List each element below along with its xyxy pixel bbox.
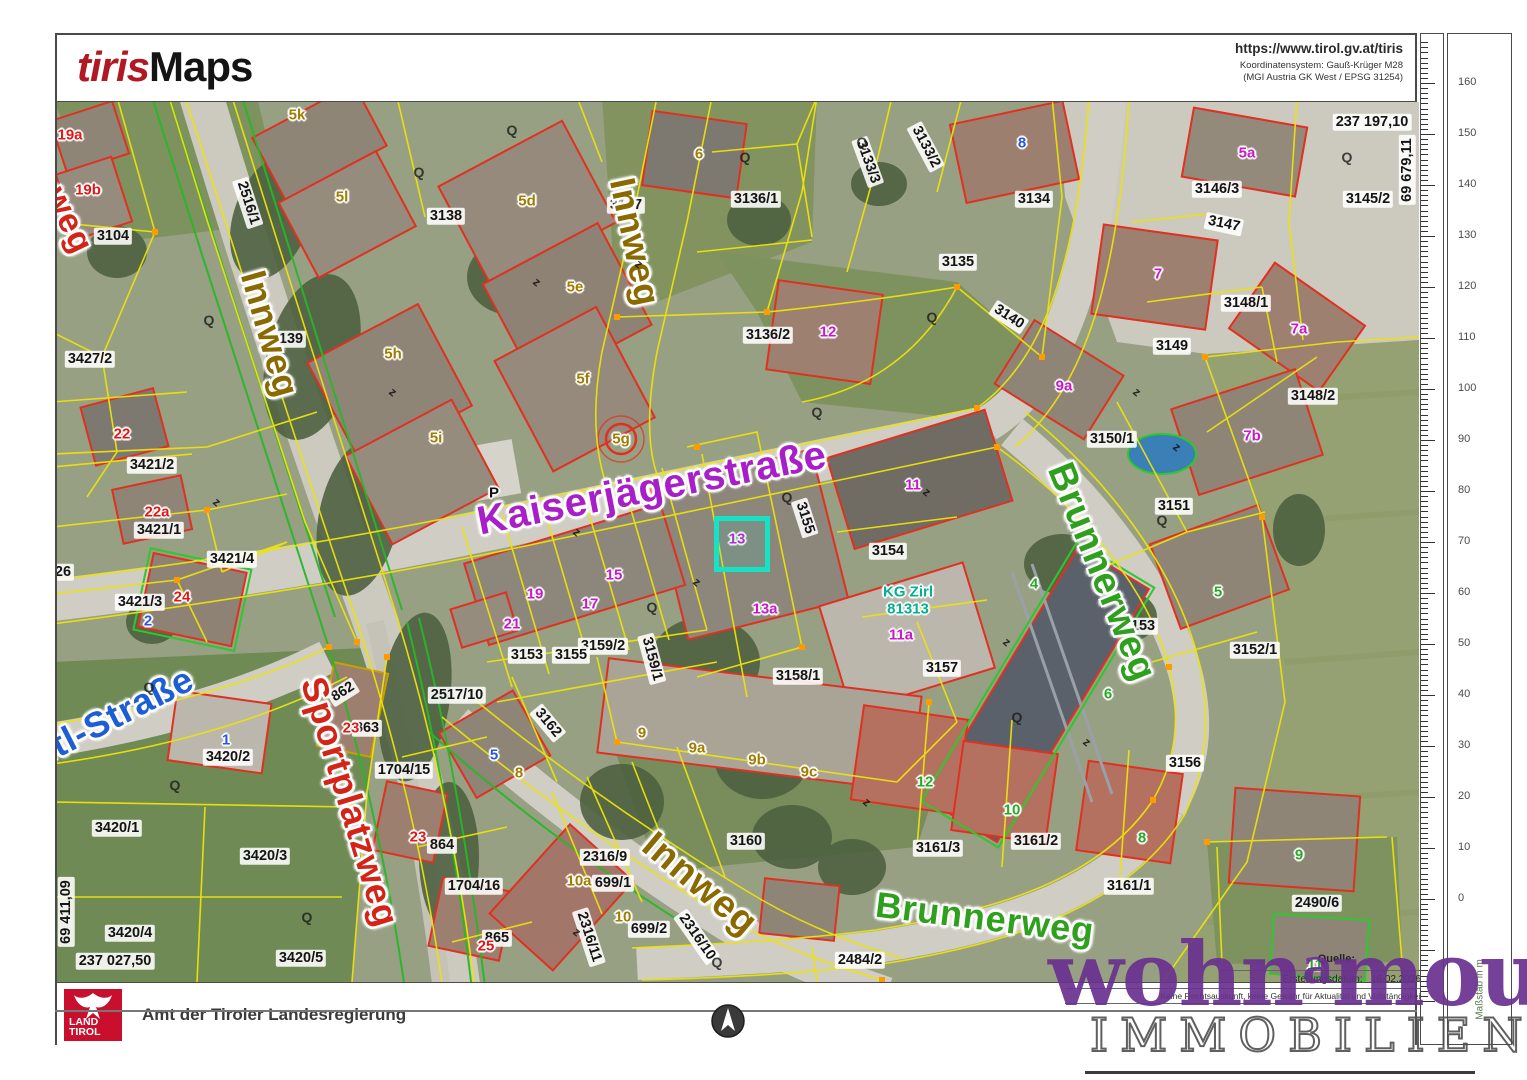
ruler-tick: [1421, 833, 1428, 834]
ruler-tick: [1421, 200, 1428, 201]
cadastre-symbol: Q: [740, 150, 751, 164]
ruler-tick: [1421, 710, 1428, 711]
building-number-label: 5i: [430, 431, 443, 446]
ruler-tick: [1421, 772, 1428, 773]
ruler-tick: [1421, 593, 1435, 594]
ruler-tick: [1421, 251, 1428, 252]
building-number-label: 19a: [57, 128, 82, 143]
ruler-tick: [1421, 93, 1428, 94]
land-tirol-text: LAND TIROL: [69, 1017, 101, 1037]
ruler-tick: [1421, 241, 1428, 242]
building-number-label: 7b: [1243, 429, 1261, 444]
ruler-tick: [1421, 782, 1428, 783]
parcel-label: 3148/1: [1221, 295, 1271, 312]
parcel-label: 699/2: [628, 921, 670, 938]
ruler-tick: [1421, 639, 1428, 640]
parcel-label: 3427/2: [65, 351, 115, 368]
building-number-label: 11a: [889, 628, 913, 643]
ruler-tick-label: 160: [1458, 76, 1476, 88]
ruler-tick: [1421, 333, 1428, 334]
ruler-tick: [1421, 129, 1428, 130]
ruler-tick: [1421, 751, 1428, 752]
ruler-tick: [1421, 481, 1428, 482]
building-number-label: 81313: [887, 602, 929, 617]
grid-coordinate-label: 69 411,09: [58, 877, 75, 947]
cadastre-symbol: Q: [1157, 513, 1168, 527]
scale-ruler-ticks: [1420, 33, 1444, 1045]
tiris-maps-logo: tirisMaps: [77, 43, 252, 91]
ruler-tick: [1421, 807, 1428, 808]
tiris-maps-print: tirisMaps https://www.tirol.gv.at/tiris …: [0, 0, 1527, 1080]
scale-ruler-numbers: Maßstab in m 160150140130120110100908070…: [1447, 33, 1512, 1045]
parcel-label: 3148/2: [1288, 388, 1338, 405]
ruler-tick: [1421, 731, 1428, 732]
building-number-label: 8: [1138, 831, 1146, 846]
ruler-tick: [1421, 904, 1428, 905]
cadastre-symbol: Q: [507, 123, 518, 137]
ruler-tick-label: 60: [1458, 586, 1470, 598]
ruler-tick: [1421, 868, 1428, 869]
building-number-label: 11: [905, 478, 921, 493]
ruler-tick: [1421, 103, 1428, 104]
north-compass-icon: [710, 1003, 746, 1039]
parcel-label: 3145/2: [1343, 191, 1393, 208]
ruler-tick: [1421, 838, 1428, 839]
ruler-tick: [1421, 613, 1428, 614]
ruler-tick: [1421, 573, 1428, 574]
ruler-tick: [1421, 313, 1428, 314]
ruler-tick: [1421, 185, 1435, 186]
ruler-tick: [1421, 52, 1428, 53]
building-number-label: 23: [410, 830, 427, 845]
ruler-tick: [1421, 894, 1428, 895]
ruler-tick: [1421, 542, 1435, 543]
tiris-url: https://www.tirol.gv.at/tiris: [1235, 41, 1403, 56]
ruler-tick-label: 140: [1458, 178, 1476, 190]
ruler-tick: [1421, 522, 1428, 523]
ruler-tick: [1421, 486, 1428, 487]
parcel-label: 3149: [1153, 338, 1191, 355]
ruler-tick: [1421, 654, 1428, 655]
ruler-tick: [1421, 221, 1428, 222]
building-number-label: 13a: [752, 602, 777, 617]
ruler-tick: [1421, 297, 1428, 298]
cadastre-symbol: Q: [1342, 150, 1353, 164]
building-number-label: 19b: [75, 183, 101, 198]
ruler-tick: [1421, 328, 1428, 329]
ruler-tick: [1421, 670, 1428, 671]
building-number-label: 15: [606, 568, 623, 583]
ruler-tick-label: 100: [1458, 382, 1476, 394]
ruler-tick: [1421, 460, 1428, 461]
ruler-tick: [1421, 119, 1428, 120]
cadastre-symbol: Q: [782, 490, 793, 504]
ruler-tick: [1421, 624, 1428, 625]
parcel-label: 3420/5: [276, 950, 326, 967]
selected-building-highlight[interactable]: [714, 516, 770, 572]
ruler-tick: [1421, 73, 1428, 74]
ruler-tick: [1421, 445, 1428, 446]
ruler-tick: [1421, 323, 1428, 324]
ruler-tick: [1421, 741, 1428, 742]
agency-title: Amt der Tiroler Landesregierung: [142, 1005, 406, 1025]
ruler-tick: [1421, 78, 1428, 79]
ruler-tick: [1421, 476, 1428, 477]
ruler-tick: [1421, 705, 1428, 706]
ruler-tick: [1421, 109, 1428, 110]
ruler-tick: [1421, 562, 1428, 563]
ruler-tick: [1421, 527, 1428, 528]
ruler-tick: [1421, 700, 1428, 701]
ruler-tick: [1421, 675, 1428, 676]
ruler-tick-label: 80: [1458, 484, 1470, 496]
ruler-tick: [1421, 211, 1428, 212]
ruler-tick: [1421, 797, 1435, 798]
ruler-tick: [1421, 318, 1428, 319]
ruler-tick: [1421, 256, 1428, 257]
building-number-label: 5k: [289, 108, 306, 123]
ruler-tick: [1421, 537, 1428, 538]
watermark-underline: [1085, 1071, 1475, 1074]
ruler-tick: [1421, 262, 1428, 263]
ruler-tick: [1421, 501, 1428, 502]
ruler-tick-label: 50: [1458, 637, 1470, 649]
ruler-tick: [1421, 511, 1428, 512]
ruler-tick: [1421, 440, 1435, 441]
ruler-tick: [1421, 695, 1435, 696]
parcel-label: 26: [57, 564, 74, 581]
cadastre-symbol: Q: [204, 313, 215, 327]
ruler-tick: [1421, 435, 1428, 436]
ruler-tick: [1421, 715, 1428, 716]
ruler-tick: [1421, 160, 1428, 161]
ruler-tick-label: 150: [1458, 127, 1476, 139]
ruler-tick: [1421, 721, 1428, 722]
building-number-label: 9a: [689, 741, 706, 756]
building-number-label: 7a: [1291, 322, 1308, 337]
ruler-tick: [1421, 756, 1428, 757]
building-number-label: 21: [504, 617, 521, 632]
ruler-tick: [1421, 603, 1428, 604]
parcel-label: 1704/15: [375, 762, 433, 779]
header: tirisMaps https://www.tirol.gv.at/tiris …: [57, 35, 1415, 102]
ruler-tick: [1421, 802, 1428, 803]
ruler-tick: [1421, 466, 1428, 467]
ruler-tick: [1421, 919, 1428, 920]
ruler-tick: [1421, 848, 1435, 849]
ruler-tick: [1421, 236, 1435, 237]
logo-maps: Maps: [149, 43, 252, 90]
ruler-tick-label: 30: [1458, 739, 1470, 751]
cadastre-symbol: Q: [712, 955, 723, 969]
ruler-tick: [1421, 909, 1428, 910]
building-number-label: 22: [114, 427, 131, 442]
ruler-tick: [1421, 889, 1428, 890]
building-number-label: 5a: [1239, 146, 1256, 161]
ruler-tick: [1421, 450, 1428, 451]
ruler-tick-label: 110: [1458, 331, 1476, 343]
map-frame: tirisMaps https://www.tirol.gv.at/tiris …: [55, 33, 1417, 1045]
ruler-tick-label: 90: [1458, 433, 1470, 445]
ruler-tick: [1421, 420, 1428, 421]
parcel-label: 3157: [923, 660, 961, 677]
cadastre-symbol: Q: [414, 165, 425, 179]
ruler-tick: [1421, 506, 1428, 507]
cadastre-symbol: Q: [1012, 710, 1023, 724]
building-number-label: 12: [917, 775, 934, 790]
ruler-tick: [1421, 644, 1435, 645]
ruler-tick: [1421, 629, 1428, 630]
building-number-label: 17: [582, 597, 599, 612]
header-meta: https://www.tirol.gv.at/tiris Koordinate…: [1235, 41, 1403, 84]
ruler-tick: [1421, 98, 1428, 99]
ruler-tick: [1421, 42, 1428, 43]
ruler-tick-label: 10: [1458, 841, 1470, 853]
building-number-label: 5: [490, 748, 498, 763]
ruler-tick: [1421, 787, 1428, 788]
ruler-tick: [1421, 471, 1428, 472]
ruler-tick: [1421, 277, 1428, 278]
building-number-label: 9: [1295, 848, 1303, 863]
building-number-label: 10a: [566, 874, 591, 889]
ruler-tick: [1421, 812, 1428, 813]
ruler-tick: [1421, 415, 1428, 416]
parcel-label: 3161/2: [1011, 833, 1061, 850]
parcel-label: 3161/1: [1104, 878, 1154, 895]
ruler-tick-label: 0: [1458, 892, 1464, 904]
ruler-tick: [1421, 409, 1428, 410]
ruler-tick: [1421, 195, 1428, 196]
ruler-tick: [1421, 216, 1428, 217]
building-number-label: 9: [638, 726, 646, 741]
building-number-label: 5g: [612, 432, 630, 447]
parcel-label: 3155: [552, 647, 590, 664]
parcel-label: 3160: [727, 833, 765, 850]
building-number-label: 9a: [1056, 379, 1073, 394]
building-number-label: 5l: [336, 190, 349, 205]
ruler-tick-label: 70: [1458, 535, 1470, 547]
ruler-tick: [1421, 287, 1435, 288]
ruler-tick: [1421, 170, 1428, 171]
ruler-tick: [1421, 231, 1428, 232]
ruler-tick-label: 120: [1458, 280, 1476, 292]
building-number-label: KG Zirl: [883, 585, 933, 600]
building-number-label: 8: [1018, 136, 1026, 151]
building-number-label: 5e: [567, 280, 584, 295]
ruler-tick: [1421, 246, 1428, 247]
parcel-label: 3152/1: [1230, 642, 1280, 659]
ruler-tick: [1421, 394, 1428, 395]
ruler-tick: [1421, 690, 1428, 691]
ruler-tick: [1421, 853, 1428, 854]
parcel-label: 3154: [869, 543, 907, 560]
ruler-tick: [1421, 726, 1428, 727]
building-number-label: 7: [1154, 267, 1162, 282]
parcel-label: 3134: [1015, 191, 1053, 208]
ruler-tick: [1421, 389, 1435, 390]
ruler-tick: [1421, 63, 1428, 64]
ruler-tick: [1421, 496, 1428, 497]
ruler-tick: [1421, 307, 1428, 308]
ruler-tick: [1421, 343, 1428, 344]
parcel-label: 3136/2: [743, 327, 793, 344]
ruler-tick: [1421, 598, 1428, 599]
ruler-tick: [1421, 858, 1428, 859]
ruler-tick: [1421, 843, 1428, 844]
ruler-tick: [1421, 399, 1428, 400]
building-number-label: 10: [1004, 803, 1021, 818]
coordinate-system-note: Koordinatensystem: Gauß-Krüger M28 (MGI …: [1235, 60, 1403, 84]
ruler-tick: [1421, 88, 1428, 89]
ruler-tick: [1421, 557, 1428, 558]
parcel-label: 3421/2: [127, 457, 177, 474]
building-number-label: 5: [1214, 585, 1222, 600]
parcel-label: 3136/1: [731, 191, 781, 208]
building-number-label: 8: [515, 766, 523, 781]
map-canvas[interactable]: 31043427/22516/13139313831373136/13133/3…: [57, 102, 1419, 982]
ruler-tick: [1421, 455, 1428, 456]
grid-coordinate-label: 237 197,10: [1333, 114, 1412, 131]
land-tirol-logo: LAND TIROL: [64, 989, 122, 1041]
watermark-immobilien: IMMOBILIEN: [1090, 1008, 1527, 1062]
grid-coordinate-label: 69 679,11: [1399, 135, 1416, 205]
ruler-tick: [1421, 552, 1428, 553]
ruler-tick: [1421, 124, 1428, 125]
ruler-tick: [1421, 134, 1435, 135]
ruler-tick: [1421, 302, 1428, 303]
building-number-label: 22a: [144, 505, 169, 520]
building-number-label: 5d: [518, 194, 536, 209]
ruler-tick: [1421, 736, 1428, 737]
parcel-label: 2316/9: [580, 849, 630, 866]
ruler-tick: [1421, 404, 1428, 405]
building-number-label: 6: [1104, 687, 1112, 702]
ruler-tick: [1421, 190, 1428, 191]
parcel-label: 3421/4: [207, 551, 257, 568]
building-number-label: 19: [527, 587, 544, 602]
ruler-tick: [1421, 568, 1428, 569]
parcel-label: 3156: [1166, 755, 1204, 772]
cadastre-symbol: Q: [857, 135, 868, 149]
ruler-tick: [1421, 149, 1428, 150]
ruler-tick: [1421, 792, 1428, 793]
building-number-label: 9c: [801, 765, 818, 780]
ruler-tick: [1421, 817, 1428, 818]
ruler-tick: [1421, 154, 1428, 155]
ruler-tick: [1421, 139, 1428, 140]
parcel-label: 2484/2: [835, 952, 885, 969]
parcel-label: 3153: [508, 647, 546, 664]
building-number-label: 25: [478, 939, 495, 954]
ruler-tick: [1421, 353, 1428, 354]
ruler-tick: [1421, 282, 1428, 283]
ruler-tick: [1421, 358, 1428, 359]
grid-coordinate-label: 237 027,50: [76, 953, 155, 970]
building-number-label: 12: [820, 325, 837, 340]
logo-tiris: tiris: [77, 43, 149, 90]
ruler-tick: [1421, 634, 1428, 635]
parcel-label: 3135: [939, 254, 977, 271]
parcel-label: 3420/2: [203, 749, 253, 766]
ruler-tick: [1421, 828, 1428, 829]
ruler-tick: [1421, 823, 1428, 824]
building-number-label: 1: [222, 733, 230, 748]
ruler-tick: [1421, 879, 1428, 880]
ruler-tick: [1421, 532, 1428, 533]
ruler-tick: [1421, 425, 1428, 426]
ruler-tick: [1421, 914, 1428, 915]
ruler-tick: [1421, 649, 1428, 650]
ruler-tick: [1421, 664, 1428, 665]
parcel-label: 3158/1: [773, 668, 823, 685]
ruler-tick: [1421, 379, 1428, 380]
ruler-tick: [1421, 68, 1428, 69]
ruler-tick: [1421, 899, 1435, 900]
ruler-tick: [1421, 384, 1428, 385]
parcel-label: 3420/1: [92, 820, 142, 837]
building-number-label: 5f: [576, 372, 589, 387]
ruler-tick: [1421, 547, 1428, 548]
parcel-label: 699/1: [592, 875, 634, 892]
ruler-tick: [1421, 369, 1428, 370]
parcel-label: 3146/3: [1192, 181, 1242, 198]
ruler-tick: [1421, 144, 1428, 145]
building-number-label: 24: [174, 590, 191, 605]
ruler-tick: [1421, 272, 1428, 273]
parcel-label: 3421/1: [134, 522, 184, 539]
ruler-tick: [1421, 180, 1428, 181]
ruler-tick: [1421, 863, 1428, 864]
ruler-tick: [1421, 348, 1428, 349]
ruler-tick: [1421, 685, 1428, 686]
ruler-tick: [1421, 430, 1428, 431]
parcel-label: 2517/10: [428, 687, 486, 704]
ruler-tick: [1421, 338, 1435, 339]
ruler-tick: [1421, 226, 1428, 227]
parcel-label: 3161/3: [913, 840, 963, 857]
cadastre-symbol: Q: [927, 310, 938, 324]
ruler-tick: [1421, 267, 1428, 268]
ruler-tick: [1421, 292, 1428, 293]
ruler-tick: [1421, 165, 1428, 166]
parcel-label: 3138: [427, 208, 465, 225]
parcel-label: 2490/6: [1292, 895, 1342, 912]
ruler-tick: [1421, 619, 1428, 620]
ruler-tick: [1421, 884, 1428, 885]
cadastre-symbol: Q: [170, 778, 181, 792]
ruler-tick-label: 130: [1458, 229, 1476, 241]
ruler-tick: [1421, 766, 1428, 767]
ruler-tick: [1421, 374, 1428, 375]
parcel-label: 3150/1: [1087, 431, 1137, 448]
cadastre-symbol: Q: [144, 680, 155, 694]
ruler-tick: [1421, 761, 1428, 762]
ruler-tick: [1421, 491, 1435, 492]
building-number-label: 4: [1030, 577, 1038, 592]
building-number-label: 10: [615, 910, 632, 925]
ruler-tick: [1421, 517, 1428, 518]
ruler-tick-label: 20: [1458, 790, 1470, 802]
cadastre-symbol: Q: [812, 405, 823, 419]
ruler-tick-label: 40: [1458, 688, 1470, 700]
ruler-tick: [1421, 680, 1428, 681]
building-number-label: 2: [144, 614, 152, 629]
ruler-tick: [1421, 874, 1428, 875]
ruler-tick: [1421, 175, 1428, 176]
ruler-tick: [1421, 746, 1435, 747]
ruler-tick: [1421, 583, 1428, 584]
parcel-label: 864: [427, 837, 457, 854]
